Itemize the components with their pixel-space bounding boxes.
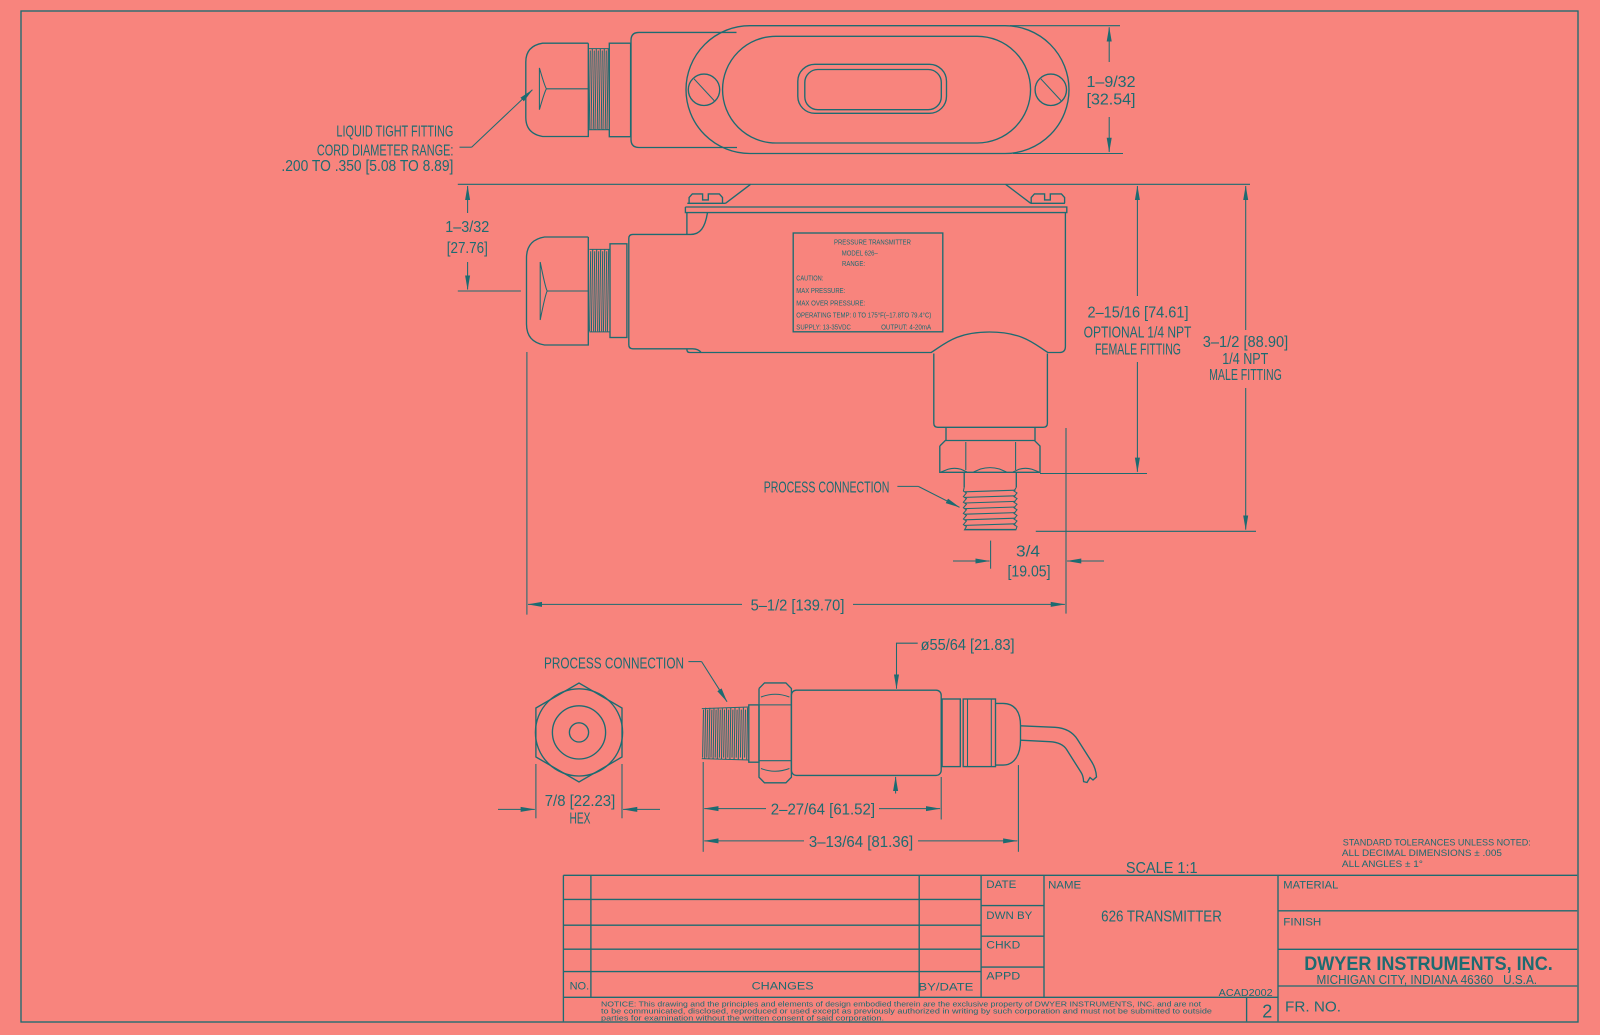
svg-text:OPERATING TEMP: 0 TO 175°F(–17: OPERATING TEMP: 0 TO 175°F(–17.8TO 79.4°… (796, 312, 931, 320)
svg-text:OUTPUT: 4-20mA: OUTPUT: 4-20mA (881, 325, 931, 332)
svg-text:FEMALE FITTING: FEMALE FITTING (1095, 342, 1181, 359)
svg-text:CAUTION:: CAUTION: (796, 276, 823, 283)
svg-text:CHANGES: CHANGES (752, 981, 814, 993)
svg-text:626 TRANSMITTER: 626 TRANSMITTER (1101, 909, 1222, 926)
svg-text:NO.: NO. (570, 981, 590, 993)
svg-text:PROCESS CONNECTION: PROCESS CONNECTION (544, 656, 684, 673)
svg-text:ALL DECIMAL DIMENSIONS ± .005: ALL DECIMAL DIMENSIONS ± .005 (1342, 848, 1502, 858)
svg-text:BY/DATE: BY/DATE (918, 982, 973, 994)
svg-text:3/4: 3/4 (1016, 544, 1040, 561)
svg-text:FINISH: FINISH (1283, 917, 1321, 929)
svg-text:DATE: DATE (986, 879, 1016, 891)
svg-text:2: 2 (1262, 1002, 1272, 1022)
svg-text:1–3/32: 1–3/32 (445, 219, 489, 236)
svg-text:1–9/32: 1–9/32 (1087, 74, 1136, 91)
svg-text:CORD DIAMETER RANGE:: CORD DIAMETER RANGE: (317, 143, 454, 160)
svg-text:MAX OVER PRESSURE:: MAX OVER PRESSURE: (796, 301, 865, 308)
svg-text:SCALE 1:1: SCALE 1:1 (1126, 860, 1198, 877)
svg-text:MAX PRESSURE:: MAX PRESSURE: (796, 288, 845, 295)
svg-text:[19.05]: [19.05] (1008, 564, 1051, 581)
svg-text:APPD: APPD (986, 971, 1020, 983)
svg-text:RANGE:: RANGE: (842, 261, 865, 268)
svg-text:5–1/2 [139.70]: 5–1/2 [139.70] (751, 598, 845, 615)
svg-text:MATERIAL: MATERIAL (1283, 879, 1338, 891)
svg-text:MODEL 626–: MODEL 626– (842, 251, 878, 258)
svg-text:DWN BY: DWN BY (986, 910, 1033, 922)
svg-text:MALE FITTING: MALE FITTING (1209, 367, 1282, 384)
svg-text:PROCESS CONNECTION: PROCESS CONNECTION (764, 480, 890, 497)
svg-text:NOTICE: This drawing and the p: NOTICE: This drawing and the principles … (601, 1002, 1201, 1009)
svg-text:SUPPLY: 13-35VDC: SUPPLY: 13-35VDC (796, 325, 851, 332)
svg-text:3–1/2 [88.90]: 3–1/2 [88.90] (1203, 334, 1289, 351)
svg-text:STANDARD TOLERANCES UNLESS NOT: STANDARD TOLERANCES UNLESS NOTED: (1343, 837, 1531, 847)
svg-text:7/8 [22.23]: 7/8 [22.23] (545, 793, 616, 810)
svg-text:3–13/64 [81.36]: 3–13/64 [81.36] (809, 834, 913, 851)
svg-text:ALL ANGLES ± 1°: ALL ANGLES ± 1° (1342, 859, 1423, 869)
svg-text:2–27/64 [61.52]: 2–27/64 [61.52] (771, 802, 875, 819)
svg-text:1/4 NPT: 1/4 NPT (1222, 351, 1268, 368)
svg-text:parties for examination withou: parties for examination without the writ… (601, 1016, 884, 1023)
svg-text:LIQUID TIGHT FITTING: LIQUID TIGHT FITTING (336, 124, 453, 141)
svg-text:[27.76]: [27.76] (447, 240, 488, 257)
svg-text:HEX: HEX (570, 811, 591, 828)
svg-text:MICHIGAN CITY, INDIANA 46360: MICHIGAN CITY, INDIANA 46360 U.S.A. (1317, 972, 1538, 987)
svg-text:.200 TO .350 [5.08 TO 8.89]: .200 TO .350 [5.08 TO 8.89] (281, 158, 453, 175)
svg-text:CHKD: CHKD (986, 940, 1020, 952)
svg-text:to be communicated, disclosed,: to be communicated, disclosed, reproduce… (601, 1009, 1212, 1016)
svg-text:ACAD2002: ACAD2002 (1219, 987, 1273, 999)
svg-text:ø55/64 [21.83]: ø55/64 [21.83] (921, 637, 1015, 654)
svg-text:NAME: NAME (1048, 879, 1081, 891)
svg-text:FR. NO.: FR. NO. (1285, 999, 1341, 1016)
svg-text:[32.54]: [32.54] (1087, 92, 1136, 109)
svg-text:PRESSURE TRANSMITTER: PRESSURE TRANSMITTER (834, 240, 911, 247)
svg-text:2–15/16 [74.61]: 2–15/16 [74.61] (1088, 305, 1189, 322)
svg-text:OPTIONAL 1/4 NPT: OPTIONAL 1/4 NPT (1084, 325, 1192, 342)
